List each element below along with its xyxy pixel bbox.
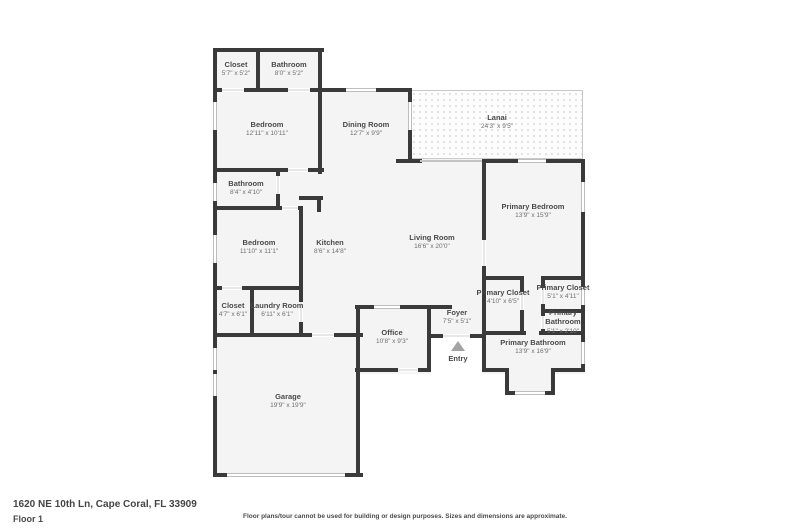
room-name: Primary Bathroom — [500, 338, 565, 347]
wall — [431, 334, 443, 338]
room-name: Kitchen — [314, 238, 346, 247]
room-name: Living Room — [409, 233, 454, 242]
room-label-primary-closet-2: Primary Closet 5'1" x 4'11" — [534, 283, 592, 302]
room-dims: 4'7" x 6'1" — [219, 311, 247, 319]
room-label-laundry-room: Laundry Room 6'11" x 6'1" — [251, 301, 304, 320]
room-dims: 7'5" x 5'1" — [443, 318, 471, 326]
room-name: Primary Bedroom — [502, 202, 565, 211]
room-label-primary-bathroom-small: Primary Bathroom 5'1" x 2'10" — [534, 308, 592, 336]
room-name: Closet — [222, 60, 250, 69]
room-label-bedroom-2: Bedroom 11'10" x 11'1" — [240, 238, 278, 257]
room-dims: 12'7" x 9'9" — [343, 130, 390, 138]
door-opening — [288, 88, 310, 92]
room-dims: 19'9" x 19'9" — [270, 402, 306, 410]
door-opening — [398, 368, 418, 372]
door-opening — [288, 168, 308, 172]
wall — [553, 368, 585, 372]
window — [213, 374, 217, 396]
room-label-primary-bedroom: Primary Bedroom 13'9" x 15'9" — [502, 202, 565, 221]
room-label-bathroom-2: Bathroom 8'4" x 4'10" — [228, 179, 263, 198]
window — [518, 159, 546, 163]
room-label-office: Office 10'8" x 9'3" — [376, 328, 408, 347]
room-name: Bathroom — [228, 179, 263, 188]
room-dims: 24'3" x 9'5" — [481, 123, 513, 131]
window — [515, 391, 545, 395]
wall — [356, 305, 360, 477]
door-opening — [222, 88, 244, 92]
room-label-foyer: Foyer 7'5" x 5'1" — [443, 308, 471, 327]
door-opening — [312, 333, 334, 337]
room-dims: 10'8" x 9'3" — [376, 338, 408, 346]
room-dims: 8'0" x 5'2" — [271, 70, 306, 78]
window — [213, 348, 217, 370]
window — [213, 183, 217, 201]
room-name: Lanai — [481, 113, 513, 122]
room-label-bathroom-1: Bathroom 8'0" x 5'2" — [271, 60, 306, 79]
floor-label: Floor 1 — [13, 514, 43, 524]
room-dims: 6'11" x 6'1" — [251, 311, 304, 319]
room-label-kitchen: Kitchen 8'6" x 14'8" — [314, 238, 346, 257]
window — [227, 473, 345, 477]
room-dims: 5'1" x 2'10" — [534, 328, 592, 336]
floor-plan: Closet 5'7" x 5'2" Bathroom 8'0" x 5'2" … — [0, 0, 800, 480]
door-opening — [482, 240, 486, 266]
room-name: Laundry Room — [251, 301, 304, 310]
room-name: Bedroom — [240, 238, 278, 247]
wall — [213, 48, 324, 52]
wall — [541, 276, 585, 280]
room-label-dining-room: Dining Room 12'7" x 9'9" — [343, 120, 390, 139]
room-dims: 8'4" x 4'10" — [228, 189, 263, 197]
room-label-bedroom-1: Bedroom 12'11" x 10'11" — [246, 120, 288, 139]
wall — [355, 368, 431, 372]
room-dims: 11'10" x 11'1" — [240, 248, 278, 256]
wall — [213, 333, 363, 337]
window — [408, 102, 412, 130]
room-label-primary-bathroom: Primary Bathroom 13'9" x 16'9" — [500, 338, 565, 357]
window — [581, 342, 585, 364]
room-name: Primary Closet — [534, 283, 592, 292]
window — [213, 235, 217, 263]
window — [346, 88, 376, 92]
room-dims: 13'9" x 16'9" — [500, 348, 565, 356]
room-dims: 4'10" x 6'5" — [474, 298, 532, 306]
wall — [482, 331, 526, 335]
wall — [317, 196, 321, 212]
room-name: Closet — [219, 301, 247, 310]
floorplan-page: Closet 5'7" x 5'2" Bathroom 8'0" x 5'2" … — [0, 0, 800, 530]
wall — [486, 276, 524, 280]
room-dims: 5'7" x 5'2" — [222, 70, 250, 78]
door-opening — [222, 286, 242, 290]
window — [581, 182, 585, 212]
room-label-lanai: Lanai 24'3" x 9'5" — [481, 113, 513, 132]
room-label-closet-2: Closet 4'7" x 6'1" — [219, 301, 247, 320]
room-name: Bathroom — [271, 60, 306, 69]
room-dims: 13'9" x 15'9" — [502, 212, 565, 220]
room-label-closet-1: Closet 5'7" x 5'2" — [222, 60, 250, 79]
door-opening — [443, 334, 470, 338]
room-name: Garage — [270, 392, 306, 401]
wall — [427, 305, 431, 372]
wall — [396, 159, 422, 163]
wall — [318, 48, 322, 174]
entry-label: Entry — [448, 354, 467, 363]
entry-arrow-icon — [451, 341, 465, 351]
room-dims: 16'6" x 20'0" — [409, 243, 454, 251]
room-label-primary-closet-1: Primary Closet 4'10" x 6'5" — [474, 288, 532, 307]
room-name: Office — [376, 328, 408, 337]
room-name: Bedroom — [246, 120, 288, 129]
room-dims: 5'1" x 4'11" — [534, 293, 592, 301]
room-name: Foyer — [443, 308, 471, 317]
room-dims: 8'6" x 14'8" — [314, 248, 346, 256]
room-name: Dining Room — [343, 120, 390, 129]
door-opening — [282, 206, 298, 210]
window — [374, 305, 400, 309]
room-label-garage: Garage 19'9" x 19'9" — [270, 392, 306, 411]
window — [213, 102, 217, 130]
room-dims: 12'11" x 10'11" — [246, 130, 288, 138]
room-label-living-room: Living Room 16'6" x 20'0" — [409, 233, 454, 252]
room-name: Primary Closet — [474, 288, 532, 297]
sliding-door — [420, 160, 482, 162]
address-text: 1620 NE 10th Ln, Cape Coral, FL 33909 — [13, 499, 197, 510]
disclaimer-text: Floor plans/tour cannot be used for buil… — [243, 513, 567, 520]
wall — [256, 48, 260, 92]
door-opening — [276, 176, 280, 194]
room-name: Primary Bathroom — [534, 308, 592, 327]
